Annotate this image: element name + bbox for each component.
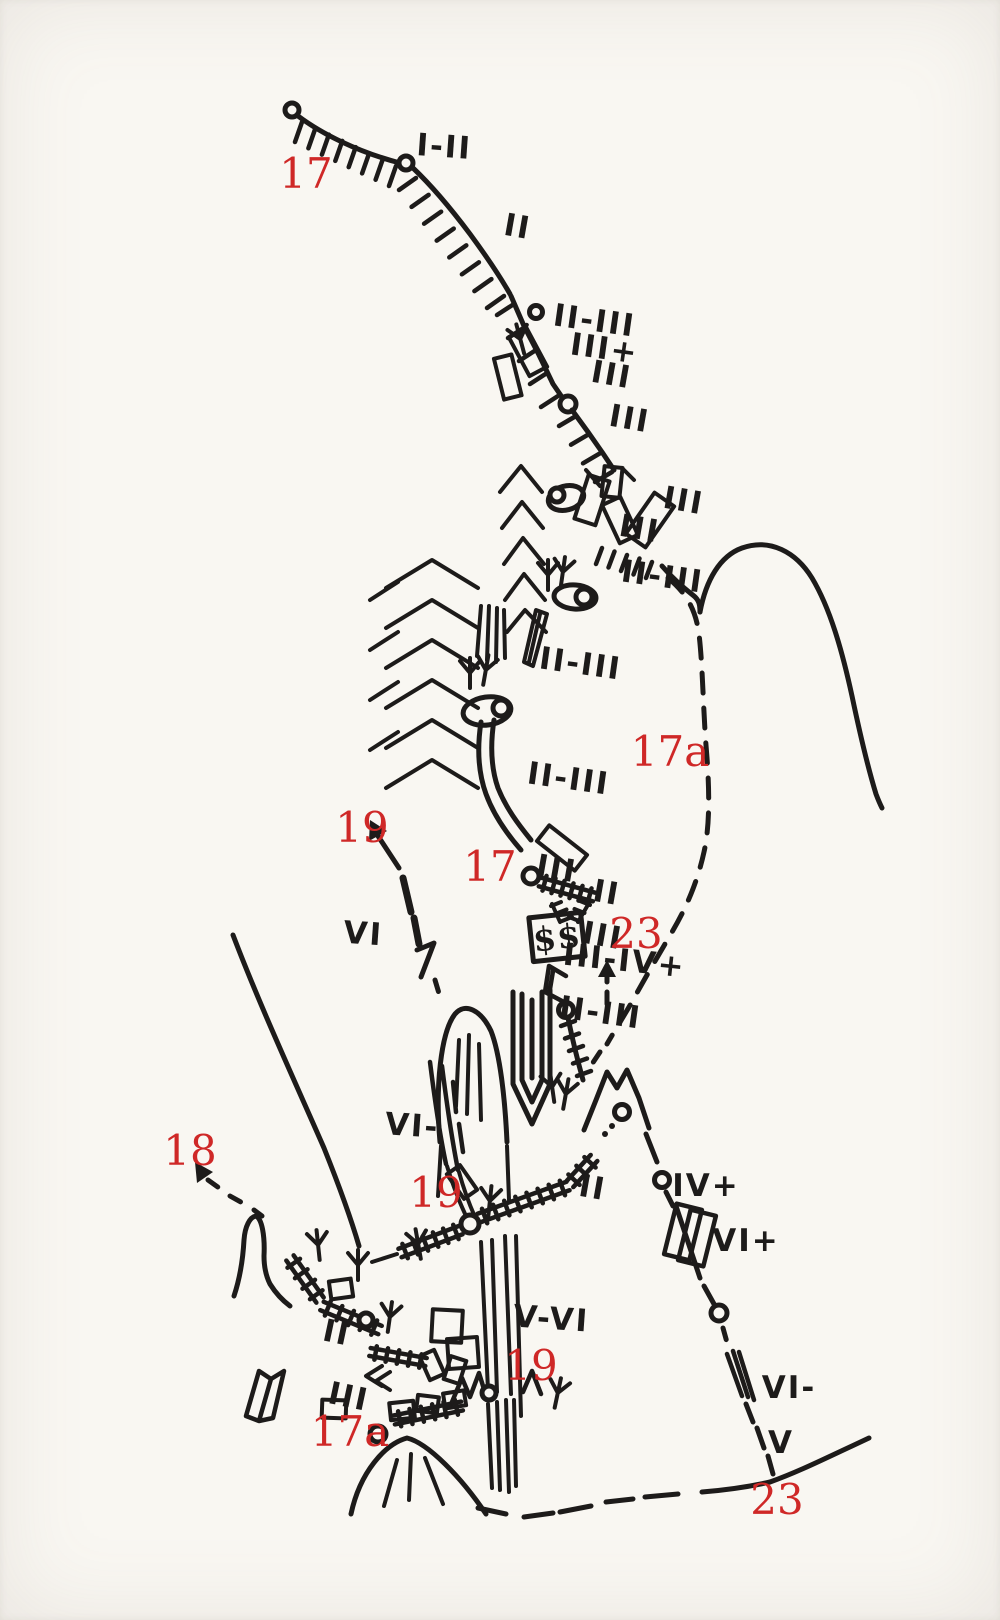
dashed-bit — [435, 980, 441, 1000]
grade-label: II — [320, 1313, 354, 1354]
grade-label: II — [576, 1168, 609, 1208]
tree-icon — [553, 1077, 578, 1110]
belay-circle — [576, 589, 592, 605]
route-19-traverse — [348, 1155, 597, 1280]
dashed-connector — [588, 1052, 600, 1070]
ground — [478, 1438, 869, 1517]
thick-dash-line — [403, 878, 419, 944]
grade-label: II-III — [619, 553, 706, 600]
topo-drawing: $$ — [0, 0, 1000, 1620]
grade-label: VI — [342, 915, 384, 954]
dashed-bit — [723, 1328, 728, 1346]
ground-dashes — [478, 1494, 678, 1517]
grade-label: III — [660, 480, 706, 523]
route-number-19-lower: 19 — [504, 1341, 557, 1390]
grade-label: II — [501, 207, 534, 247]
rock-block — [419, 1350, 444, 1380]
grade-label: II-III — [537, 640, 624, 687]
route-line — [646, 1134, 657, 1162]
grade-label: VI- — [762, 1370, 816, 1406]
slab-lines — [477, 606, 505, 662]
belay-circle — [615, 1105, 630, 1120]
belay-circle — [711, 1305, 727, 1321]
pinnacle-outline — [234, 1216, 290, 1306]
chevron-pillar — [513, 990, 550, 1124]
scrub-field-large — [370, 466, 546, 788]
belay-circle — [482, 1386, 496, 1400]
belay-circle — [359, 1313, 373, 1327]
herringbone-chevrons — [370, 560, 478, 788]
peak-zigzag — [584, 1070, 649, 1130]
grade-label: IV+ — [672, 1168, 740, 1204]
tree-icon — [378, 1301, 402, 1333]
crack-bundle — [727, 1351, 754, 1400]
grade-label: VI+ — [712, 1223, 780, 1259]
ridge-hatch — [399, 178, 504, 308]
rock-block — [329, 1279, 353, 1300]
grade-label: III — [588, 354, 634, 397]
route-number-18-left: 18 — [163, 1126, 216, 1175]
grade-label: V-VI — [512, 1298, 590, 1339]
grade-label: VI- — [384, 1106, 441, 1146]
junction-peaks — [584, 1070, 649, 1137]
upper-block-cluster — [460, 466, 674, 728]
couloir-lines-lower — [488, 1400, 516, 1492]
ledge-ladder — [286, 1255, 323, 1302]
tree-icon — [538, 560, 558, 590]
zigzag-mark — [417, 943, 434, 977]
belay-circle — [550, 488, 564, 502]
route-number-17a-lower: 17a — [311, 1407, 389, 1456]
tree-icon — [307, 1229, 330, 1261]
chevron-stack-small — [500, 466, 546, 632]
dot — [609, 1123, 615, 1129]
belay-circle — [461, 1215, 479, 1233]
prism-block — [246, 1371, 284, 1421]
grade-label: V — [768, 1425, 794, 1461]
route-number-19-mid: 19 — [409, 1168, 462, 1217]
belay-circle — [655, 1173, 670, 1188]
route-number-17-mid: 17 — [463, 842, 516, 891]
belay-circle — [493, 700, 509, 716]
topo-sketch-page: $$ — [0, 0, 1000, 1620]
traverse-ladder — [398, 1225, 462, 1258]
traverse-line — [372, 1254, 397, 1262]
tree-icon — [348, 1250, 368, 1280]
dot — [602, 1131, 608, 1137]
rock-tower-outline — [700, 545, 882, 808]
grade-label: II-III — [525, 755, 612, 802]
talus-rays — [384, 1454, 443, 1506]
grade-label: I-II — [415, 127, 473, 167]
route-number-23-mid: 23 — [609, 909, 662, 958]
dashed-route-17a-23 — [588, 545, 882, 1070]
grade-labels: I-II II II-III III+ III III III III II-I… — [320, 127, 817, 1461]
face-edge-line — [233, 935, 359, 1246]
grade-label: III — [606, 398, 652, 441]
grade-label: III — [533, 848, 579, 891]
belay-circle — [530, 306, 543, 319]
grade-label: II — [590, 873, 623, 913]
route-number-17-top: 17 — [279, 149, 332, 198]
route-number-17a-upper: 17a — [631, 727, 709, 776]
route-number-23-lower: 23 — [750, 1475, 803, 1524]
grade-label: III — [616, 508, 662, 551]
route-number-19-upper: 19 — [335, 803, 388, 852]
dashed-route-18 — [208, 1180, 262, 1216]
